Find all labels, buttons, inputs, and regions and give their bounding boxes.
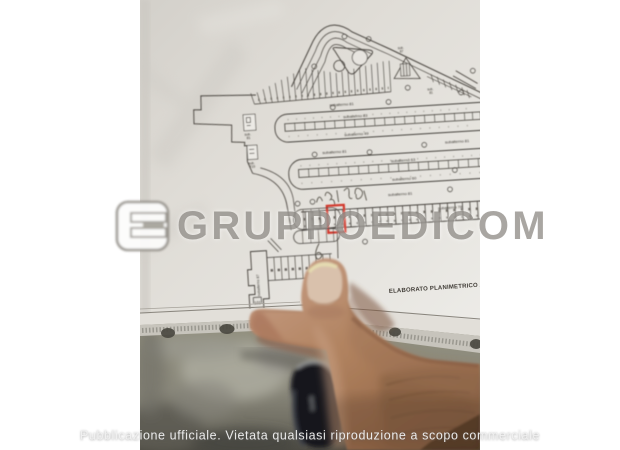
svg-text:sports: sports [308,396,315,412]
svg-text:Pubblicazione ufficiale. Vieta: Pubblicazione ufficiale. Vietata qualsia… [80,429,540,443]
svg-text:GRUPPOEDICOM: GRUPPOEDICOM [177,204,549,248]
svg-text:101: 101 [254,300,262,305]
svg-text:sub. T19: sub. T19 [248,161,256,169]
